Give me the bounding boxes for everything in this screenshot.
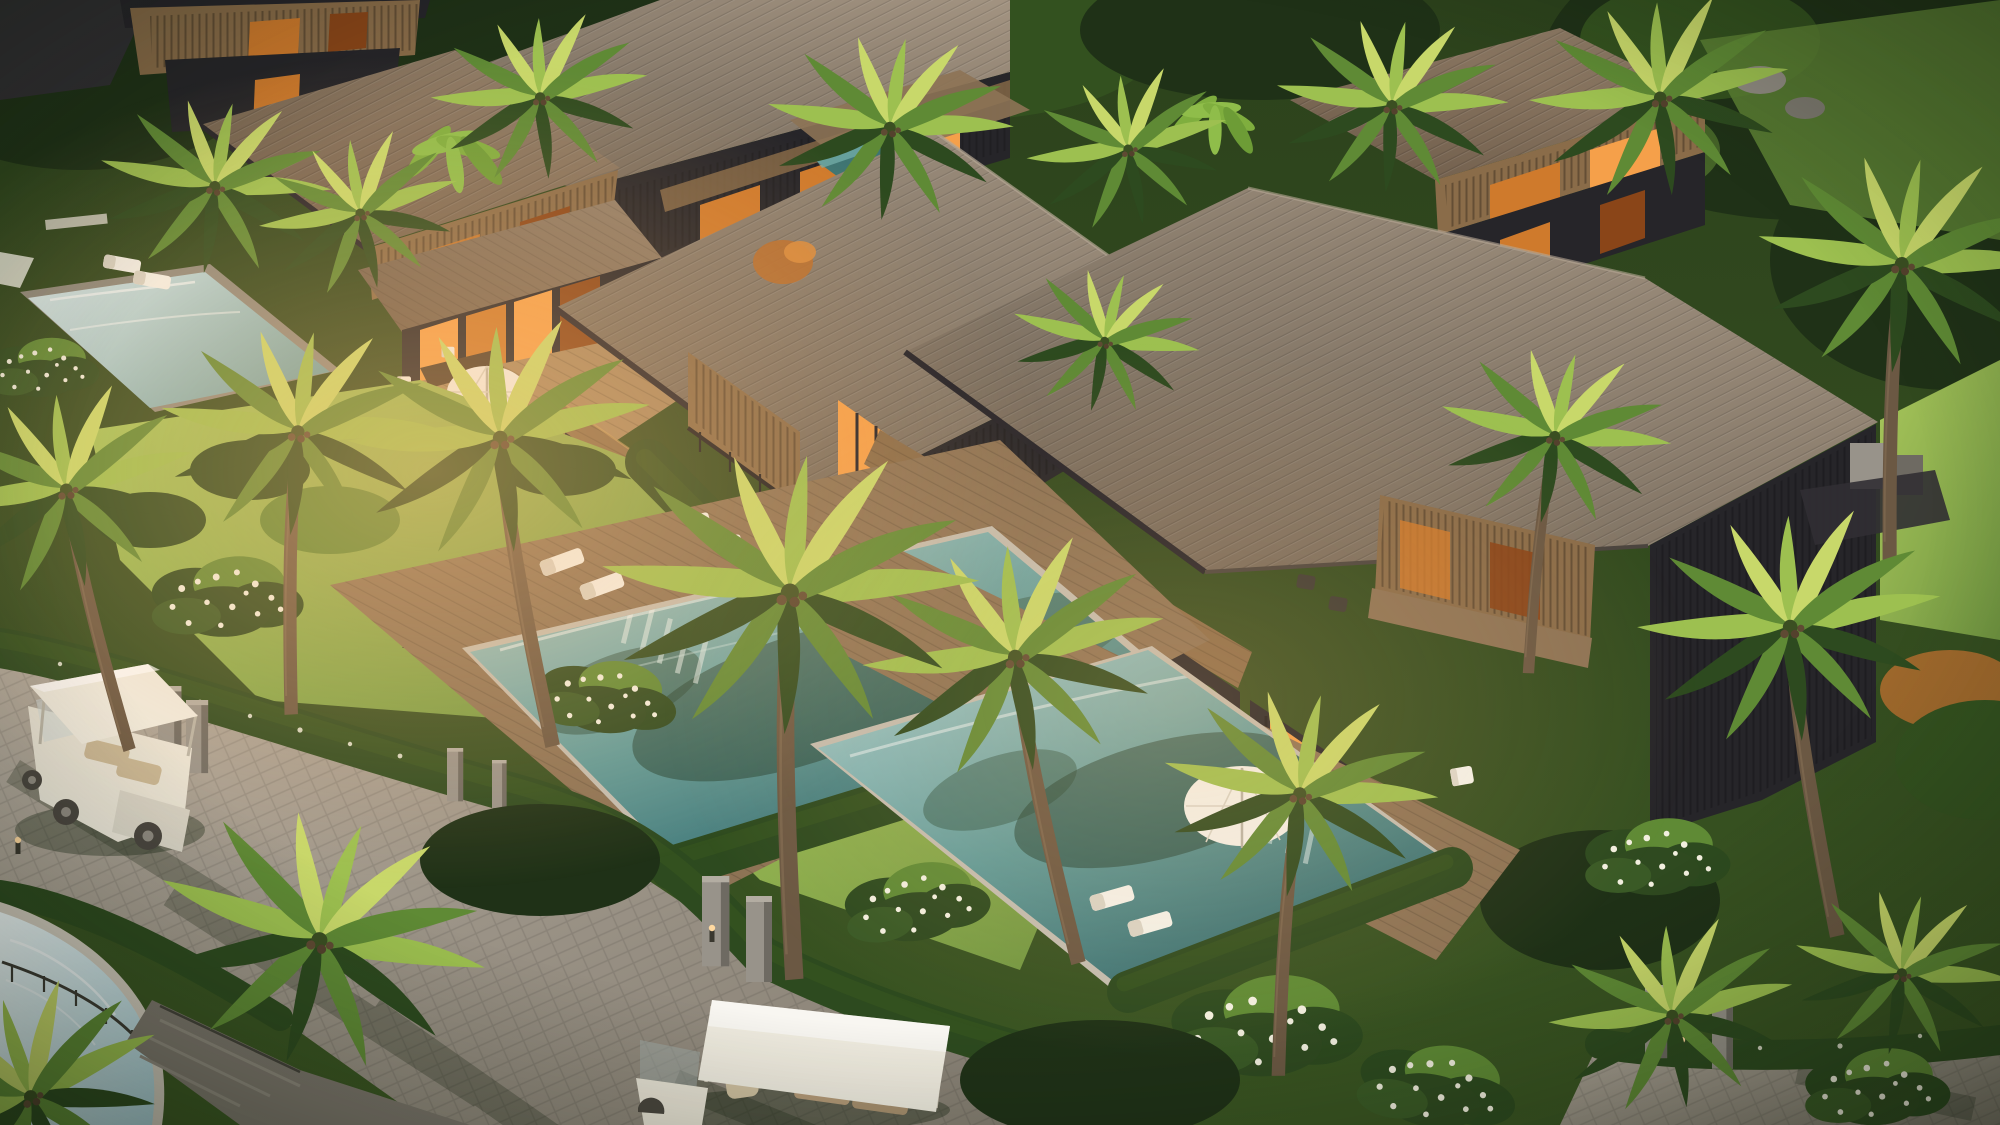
resort-aerial-render: Aerial golden-hour architectural renderi…: [0, 0, 2000, 1125]
render-canvas: Aerial golden-hour architectural renderi…: [0, 0, 2000, 1125]
vignette: [0, 0, 2000, 1125]
